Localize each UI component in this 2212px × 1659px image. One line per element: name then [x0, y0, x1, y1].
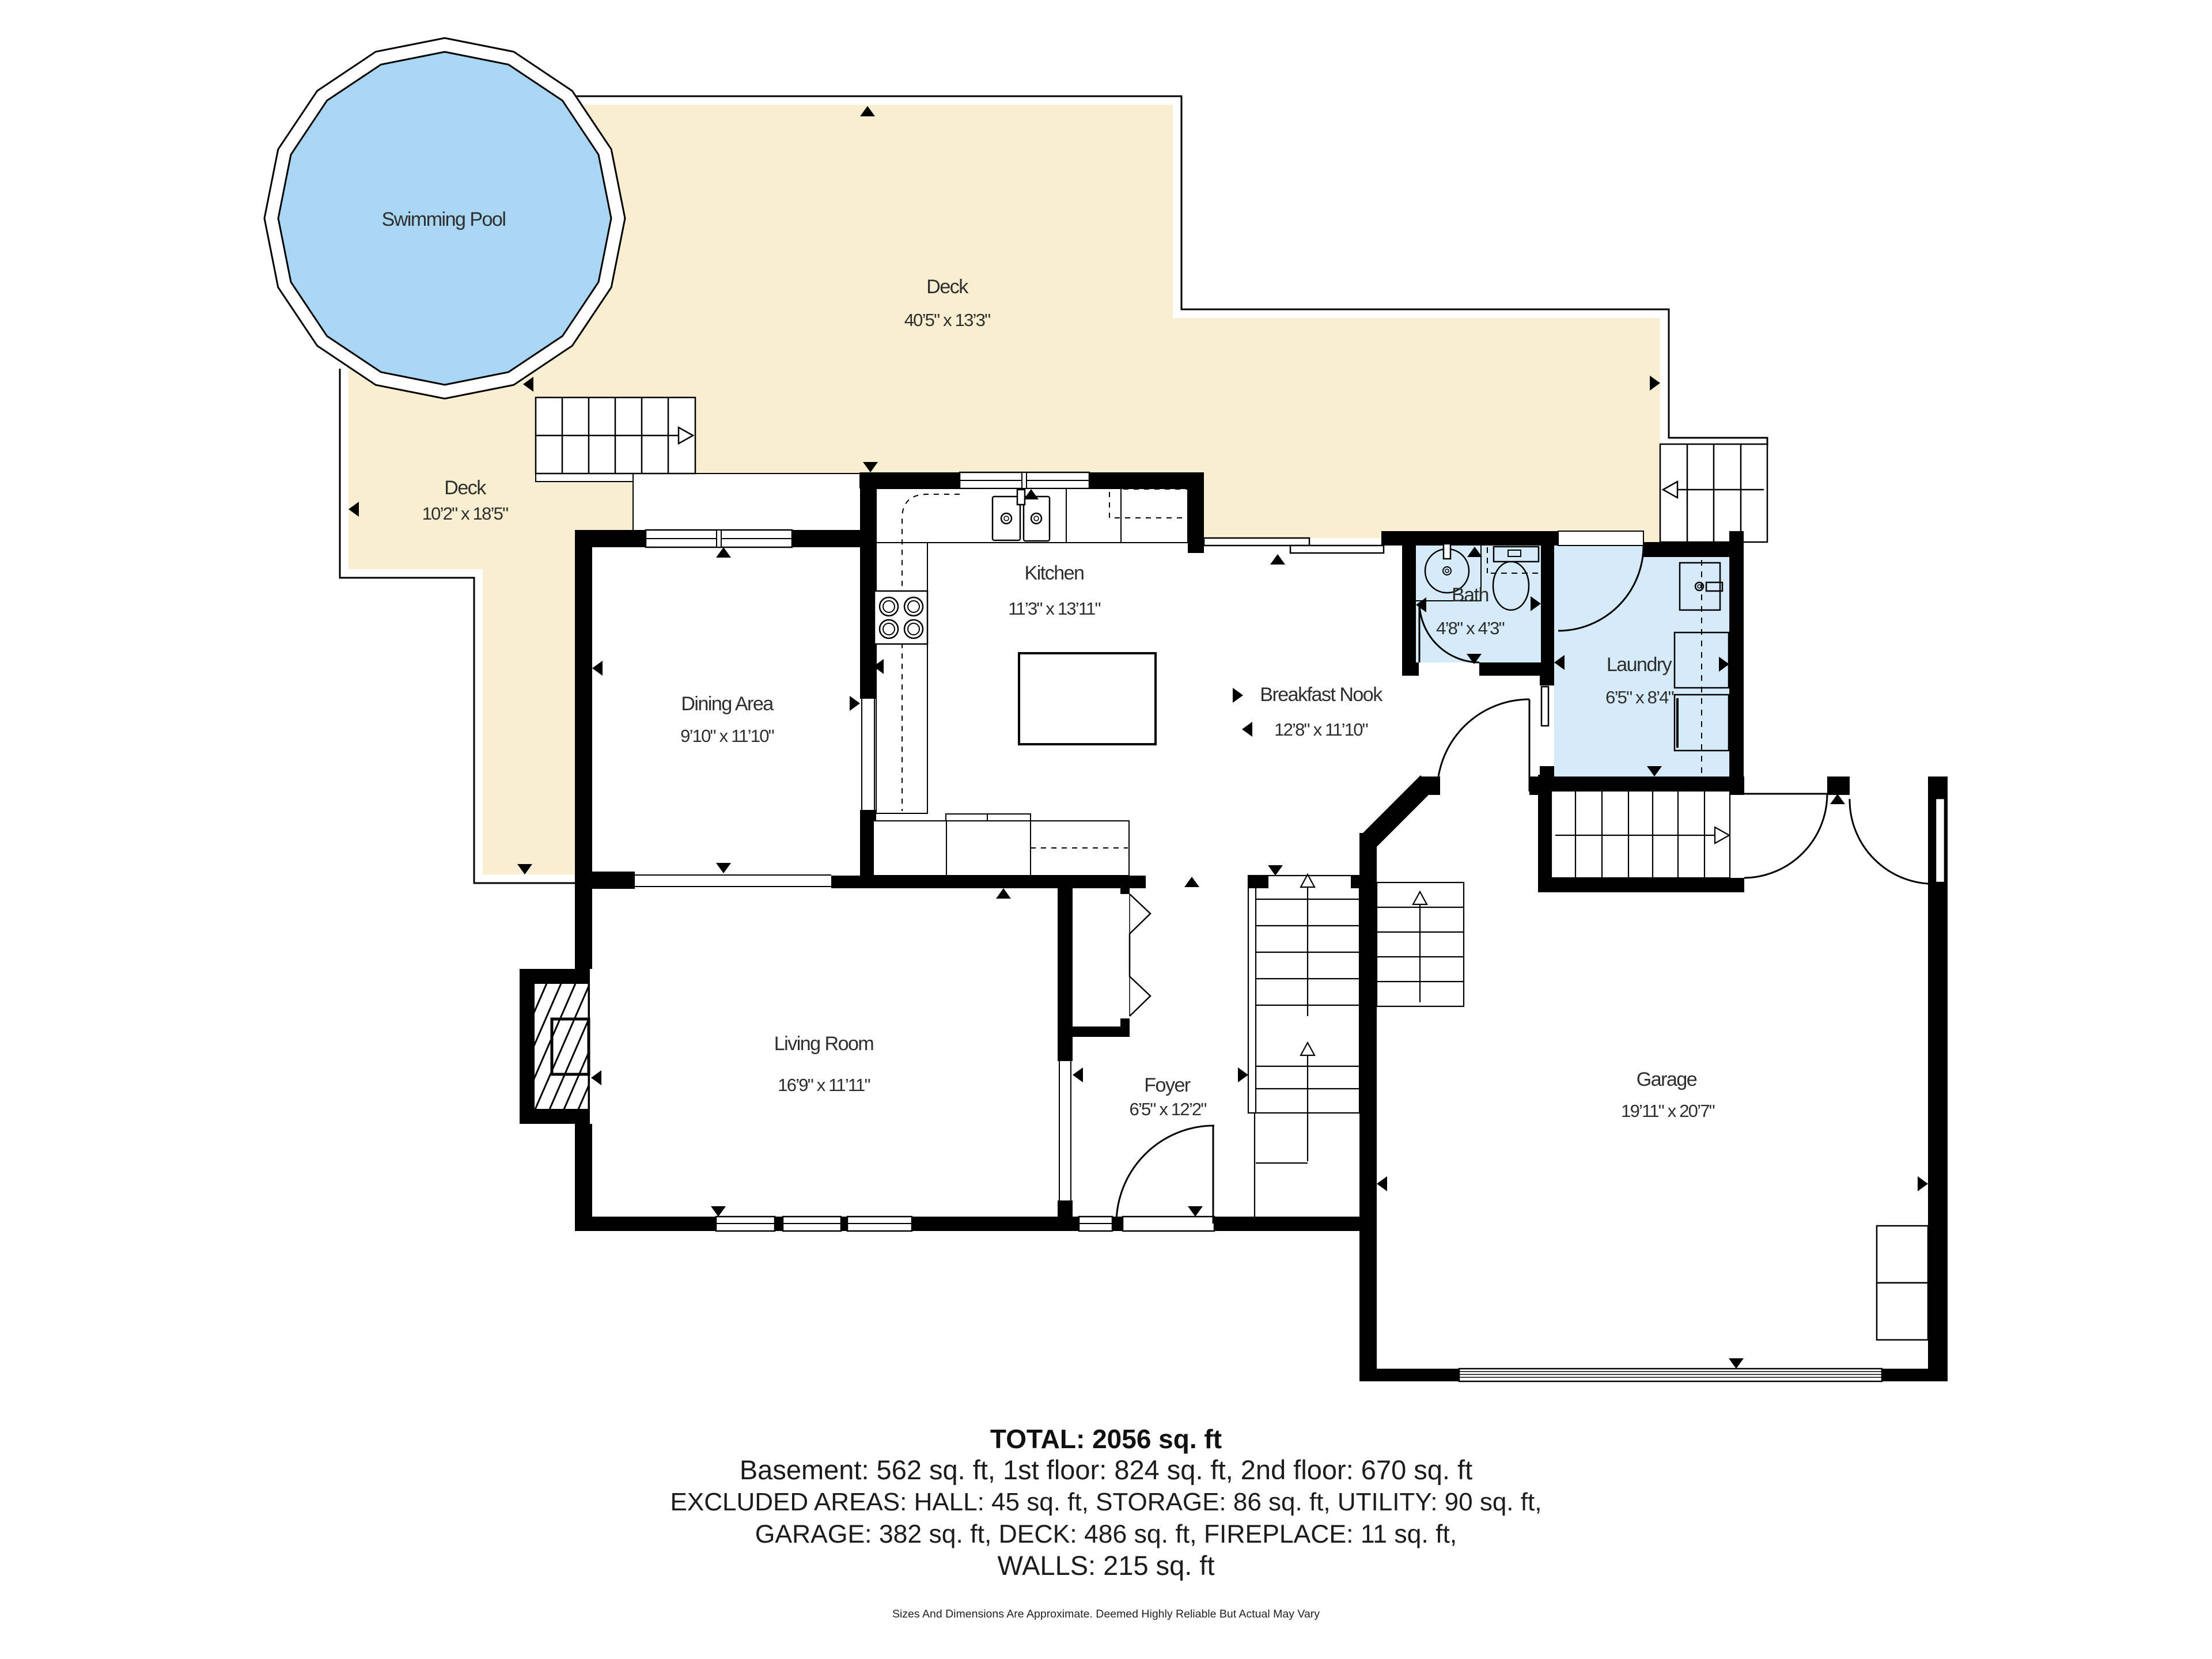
svg-text:12’8" x 11’10": 12’8" x 11’10": [1274, 719, 1368, 740]
svg-text:Laundry: Laundry: [1607, 654, 1672, 676]
svg-text:Breakfast Nook: Breakfast Nook: [1260, 684, 1383, 706]
svg-text:WALLS: 215 sq. ft: WALLS: 215 sq. ft: [997, 1550, 1214, 1581]
svg-text:10’2" x 18’5": 10’2" x 18’5": [422, 503, 508, 524]
svg-text:16’9" x 11’11": 16’9" x 11’11": [778, 1075, 870, 1095]
svg-text:Bath: Bath: [1452, 584, 1488, 606]
svg-text:40’5" x 13’3": 40’5" x 13’3": [904, 310, 990, 330]
svg-text:4’8" x 4’3": 4’8" x 4’3": [1436, 618, 1504, 638]
svg-text:Swimming Pool: Swimming Pool: [382, 209, 506, 230]
svg-text:Garage: Garage: [1637, 1069, 1697, 1090]
svg-text:EXCLUDED AREAS: HALL: 45 sq. f: EXCLUDED AREAS: HALL: 45 sq. ft, STORAGE…: [671, 1488, 1542, 1516]
svg-text:Sizes And Dimensions Are Appro: Sizes And Dimensions Are Approximate. De…: [892, 1608, 1320, 1620]
svg-text:GARAGE: 382 sq. ft, DECK: 486: GARAGE: 382 sq. ft, DECK: 486 sq. ft, FI…: [755, 1520, 1457, 1548]
svg-text:19’11" x 20’7": 19’11" x 20’7": [1621, 1101, 1714, 1121]
svg-text:6’5" x 8’4": 6’5" x 8’4": [1605, 687, 1673, 707]
svg-text:9’10" x 11’10": 9’10" x 11’10": [680, 726, 774, 746]
svg-text:11’3" x 13’11": 11’3" x 13’11": [1008, 599, 1100, 619]
svg-text:6’5" x 12’2": 6’5" x 12’2": [1129, 1099, 1206, 1119]
svg-text:Deck: Deck: [444, 477, 487, 499]
svg-text:Deck: Deck: [926, 276, 969, 298]
svg-text:Dining Area: Dining Area: [681, 693, 774, 715]
svg-text:Living Room: Living Room: [774, 1033, 874, 1055]
svg-text:Kitchen: Kitchen: [1025, 562, 1084, 584]
svg-text:TOTAL: 2056 sq. ft: TOTAL: 2056 sq. ft: [990, 1424, 1222, 1454]
svg-text:Foyer: Foyer: [1144, 1074, 1191, 1096]
svg-text:Basement: 562 sq. ft, 1st floo: Basement: 562 sq. ft, 1st floor: 824 sq.…: [740, 1455, 1472, 1485]
